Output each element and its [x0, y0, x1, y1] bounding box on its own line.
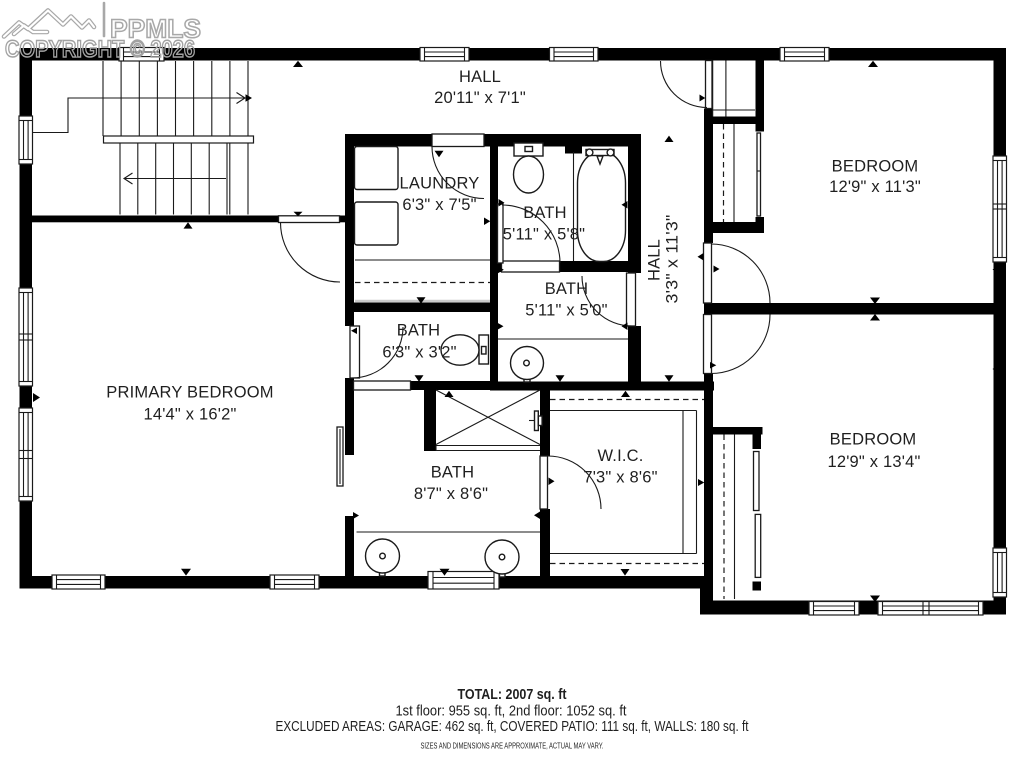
svg-text:PRIMARY BEDROOM: PRIMARY BEDROOM [106, 384, 273, 402]
svg-text:HALL: HALL [459, 68, 501, 86]
svg-text:1st floor: 955 sq. ft, 2nd flo: 1st floor: 955 sq. ft, 2nd floor: 1052 s… [396, 704, 627, 720]
svg-text:COPYRIGHT © 2026: COPYRIGHT © 2026 [5, 36, 195, 63]
svg-text:LAUNDRY: LAUNDRY [400, 175, 480, 193]
svg-text:BEDROOM: BEDROOM [830, 431, 917, 449]
svg-text:HALL: HALL [646, 239, 664, 281]
svg-text:TOTAL: 2007 sq. ft: TOTAL: 2007 sq. ft [458, 687, 567, 703]
svg-text:12'9" x 13'4": 12'9" x 13'4" [827, 453, 920, 471]
svg-text:BATH: BATH [431, 464, 475, 482]
svg-text:5'11" x 5'8": 5'11" x 5'8" [503, 226, 586, 244]
svg-text:14'4" x 16'2": 14'4" x 16'2" [143, 406, 236, 424]
svg-text:20'11" x 7'1": 20'11" x 7'1" [434, 89, 526, 107]
svg-text:5'11" x 5'0": 5'11" x 5'0" [525, 302, 608, 320]
svg-text:SIZES AND DIMENSIONS ARE APPRO: SIZES AND DIMENSIONS ARE APPROXIMATE, AC… [421, 742, 604, 751]
svg-text:3'3" x 11'3": 3'3" x 11'3" [664, 215, 682, 304]
svg-text:EXCLUDED AREAS: GARAGE: 462 sq: EXCLUDED AREAS: GARAGE: 462 sq. ft, COVE… [276, 719, 749, 735]
svg-text:8'7" x 8'6": 8'7" x 8'6" [414, 485, 488, 503]
svg-text:7'3" x 8'6": 7'3" x 8'6" [583, 469, 657, 487]
svg-text:6'3" x 3'2": 6'3" x 3'2" [382, 344, 456, 362]
svg-text:W.I.C.: W.I.C. [597, 447, 643, 465]
svg-text:6'3" x 7'5": 6'3" x 7'5" [402, 196, 476, 214]
svg-text:BATH: BATH [545, 280, 589, 298]
svg-text:BATH: BATH [523, 204, 567, 222]
svg-text:BATH: BATH [397, 322, 441, 340]
svg-text:12'9" x 11'3": 12'9" x 11'3" [829, 178, 921, 196]
svg-text:BEDROOM: BEDROOM [832, 158, 919, 176]
